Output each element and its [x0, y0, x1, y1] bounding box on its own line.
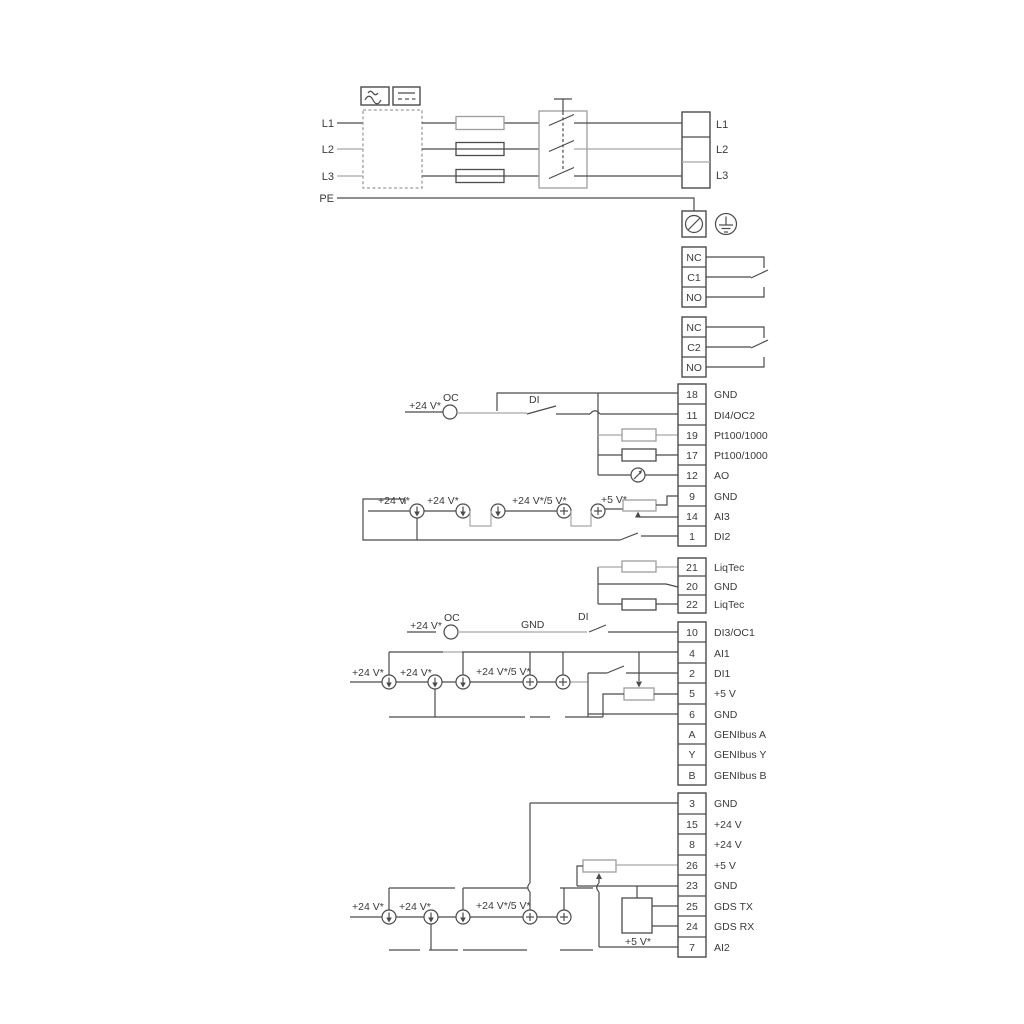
terminal-label: GND	[714, 798, 738, 810]
terminal-number: A	[688, 729, 695, 741]
current-source-plus-icon	[557, 504, 571, 518]
disconnect-switch	[539, 99, 587, 188]
label-di3: DI	[578, 611, 589, 623]
wire-hop	[597, 883, 599, 892]
relay2-nc: NC	[686, 322, 702, 334]
terminal-number: 25	[686, 901, 698, 913]
label-oc-di3: OC	[444, 612, 460, 624]
terminal-number: 1	[689, 531, 695, 543]
wiring-diagram: L1 L2 L3 PE	[0, 0, 1024, 1024]
terminal-label: GND	[714, 709, 738, 721]
terminal-label: GDS TX	[714, 901, 753, 913]
open-collector-icon	[444, 625, 458, 639]
relay1-changeover-contact	[706, 257, 768, 297]
analog-output-meter-icon	[631, 468, 645, 482]
label-24v-di4: +24 V*	[409, 400, 441, 412]
open-collector-icon	[443, 405, 457, 419]
current-source-plus-icon	[557, 910, 571, 924]
terminal-number: 3	[689, 798, 695, 810]
mains-terminal-block: L1 L2 L3	[682, 112, 728, 188]
current-source-down-icon	[491, 504, 505, 518]
terminal-number: 19	[686, 430, 698, 442]
label-24v-b: +24 V*	[399, 901, 431, 913]
terminal-number: 12	[686, 470, 698, 482]
terminal-strip-io3: 3 GND 15 +24 V 8 +24 V 26 +5 V 23 GND 25…	[678, 793, 754, 957]
pt100-sensor-17	[622, 449, 656, 461]
potentiometer-ai1	[624, 688, 654, 700]
terminal-number: 18	[686, 389, 698, 401]
relay1-block: NC C1 NO	[682, 247, 768, 307]
ai3-section: +24 V* +24 V* +24 V*/5 V* +5 V*	[363, 494, 678, 540]
terminal-number: 24	[686, 921, 698, 933]
relay1-nc: NC	[686, 252, 702, 264]
wire-hop	[528, 883, 530, 892]
current-source-plus-icon	[523, 910, 537, 924]
terminal-number: B	[688, 770, 695, 782]
label-24v-b: +24 V*	[427, 495, 459, 507]
relay2-block: NC C2 NO	[682, 317, 768, 377]
label-oc-di4: OC	[443, 392, 459, 404]
terminal-number: 6	[689, 709, 695, 721]
di3-switch-blade	[589, 625, 606, 632]
di2-switch-blade	[620, 533, 638, 540]
di4-switch-blade	[527, 406, 556, 414]
terminal-label: AI3	[714, 511, 730, 523]
mains-filter-box	[363, 110, 422, 188]
terminal-label: GENIbus B	[714, 770, 767, 782]
pt100-sensor-19	[622, 429, 656, 441]
dc-line-icon	[393, 87, 420, 105]
terminal-number: 8	[689, 839, 695, 851]
terminal-label: AO	[714, 470, 729, 482]
terminal-label: GND	[714, 581, 738, 593]
relay1-no: NO	[686, 292, 702, 304]
di4-section: +24 V* OC DI	[405, 392, 678, 482]
ai1-section: +24 V* +24 V* +24 V*/5 V*	[350, 652, 678, 717]
alt-wiring-bracket	[571, 511, 591, 526]
terminal-label: AI1	[714, 648, 730, 660]
terminal-number: 22	[686, 599, 698, 611]
wire-pe	[337, 198, 694, 211]
label-gnd-di3: GND	[521, 619, 545, 631]
di3-section: +24 V* OC GND DI	[407, 611, 678, 639]
terminal-label: LiqTec	[714, 562, 744, 574]
current-source-down-icon	[428, 675, 442, 689]
relay1-c1: C1	[687, 272, 701, 284]
terminal-label: GND	[714, 880, 738, 892]
alt-wiring-bracket	[470, 511, 491, 526]
di1-switch-blade	[607, 666, 624, 673]
potentiometer-ai2	[583, 860, 616, 879]
terminal-label: Pt100/1000	[714, 450, 768, 462]
liqtec-sensor-22	[622, 599, 656, 610]
current-source-down-icon	[456, 675, 470, 689]
terminal-label: GND	[714, 389, 738, 401]
terminal-number: 4	[689, 648, 695, 660]
label-5v-gds: +5 V*	[625, 936, 651, 948]
terminal-strip-io1: 18 GND 11 DI4/OC2 19 Pt100/1000 17 Pt100…	[678, 384, 768, 546]
relay2-no: NO	[686, 362, 702, 374]
terminal-label: DI2	[714, 531, 731, 543]
terminal-label: +5 V	[714, 688, 736, 700]
fuse-l1	[456, 117, 504, 130]
terminal-strip-liqtec: 21 LiqTec 20 GND 22 LiqTec	[678, 558, 744, 613]
input-label-l2: L2	[322, 144, 334, 156]
current-source-down-icon	[424, 910, 438, 924]
wiper-arrow	[596, 873, 602, 879]
terminal-label: Pt100/1000	[714, 430, 768, 442]
terminal-label: +5 V	[714, 860, 736, 872]
terminal-number: 10	[686, 627, 698, 639]
terminal-number: 11	[687, 410, 698, 422]
output-label-l2: L2	[716, 144, 728, 156]
input-label-l3: L3	[322, 171, 334, 183]
ac-wave-icon	[361, 87, 389, 105]
terminal-number: 15	[686, 819, 698, 831]
liqtec-sensor-21	[622, 561, 656, 572]
terminal-label: DI4/OC2	[714, 410, 755, 422]
relay2-c2: C2	[687, 342, 701, 354]
screw-terminal-icon	[682, 211, 706, 237]
gds-sensor-box	[622, 898, 652, 933]
terminal-number: 14	[686, 511, 698, 523]
label-24v-5v: +24 V*/5 V*	[476, 666, 531, 678]
current-source-plus-icon	[591, 504, 605, 518]
label-24v-a: +24 V*	[352, 667, 384, 679]
terminal-number: 17	[686, 450, 698, 462]
terminal-number: 26	[686, 860, 698, 872]
label-24v-5v: +24 V*/5 V*	[512, 495, 567, 507]
terminal-number: 9	[689, 491, 695, 503]
terminal-number: 23	[686, 880, 698, 892]
terminal-label: DI3/OC1	[714, 627, 755, 639]
label-24v-a: +24 V*	[378, 495, 410, 507]
label-24v-b: +24 V*	[400, 667, 432, 679]
ai2-section: +24 V* +24 V* +24 V*/5 V* +5 V*	[350, 803, 678, 950]
current-source-down-icon	[410, 504, 424, 518]
current-source-down-icon	[456, 910, 470, 924]
liqtec-section: 21 LiqTec 20 GND 22 LiqTec	[598, 558, 744, 613]
terminal-label: AI2	[714, 942, 730, 954]
terminal-label: GND	[714, 491, 738, 503]
wiring-diagram-page: L1 L2 L3 PE	[0, 0, 1024, 1024]
current-source-down-icon	[456, 504, 470, 518]
terminal-number: 7	[689, 942, 695, 954]
input-label-l1: L1	[322, 118, 334, 130]
output-label-l1: L1	[716, 119, 728, 131]
current-source-plus-icon	[556, 675, 570, 689]
wiper-arrow	[636, 682, 642, 688]
earth-ground-icon	[716, 214, 737, 235]
terminal-strip-io2: 10 DI3/OC1 4 AI1 2 DI1 5 +5 V 6 GND A GE…	[678, 622, 767, 785]
terminal-label: GENIbus Y	[714, 749, 766, 761]
mains-section: L1 L2 L3 PE	[319, 87, 736, 237]
terminal-number: Y	[688, 749, 695, 761]
label-di4: DI	[529, 394, 540, 406]
label-24v-5v: +24 V*/5 V*	[476, 900, 531, 912]
potentiometer-ai3	[623, 500, 656, 518]
output-label-l3: L3	[716, 170, 728, 182]
relay2-changeover-contact	[706, 327, 768, 367]
terminal-label: GENIbus A	[714, 729, 766, 741]
label-24v-di3: +24 V*	[410, 620, 442, 632]
label-24v-a: +24 V*	[352, 901, 384, 913]
terminal-label: DI1	[714, 668, 731, 680]
terminal-number: 2	[689, 668, 695, 680]
current-source-down-icon	[382, 910, 396, 924]
terminal-label: GDS RX	[714, 921, 754, 933]
terminal-number: 21	[686, 562, 698, 574]
terminal-label: LiqTec	[714, 599, 744, 611]
current-source-down-icon	[382, 675, 396, 689]
terminal-number: 5	[689, 688, 695, 700]
terminal-label: +24 V	[714, 819, 742, 831]
terminal-number: 20	[686, 581, 698, 593]
current-source-plus-icon	[523, 675, 537, 689]
wire-gnd18	[497, 393, 678, 411]
input-label-pe: PE	[319, 193, 334, 205]
terminal-label: +24 V	[714, 839, 742, 851]
